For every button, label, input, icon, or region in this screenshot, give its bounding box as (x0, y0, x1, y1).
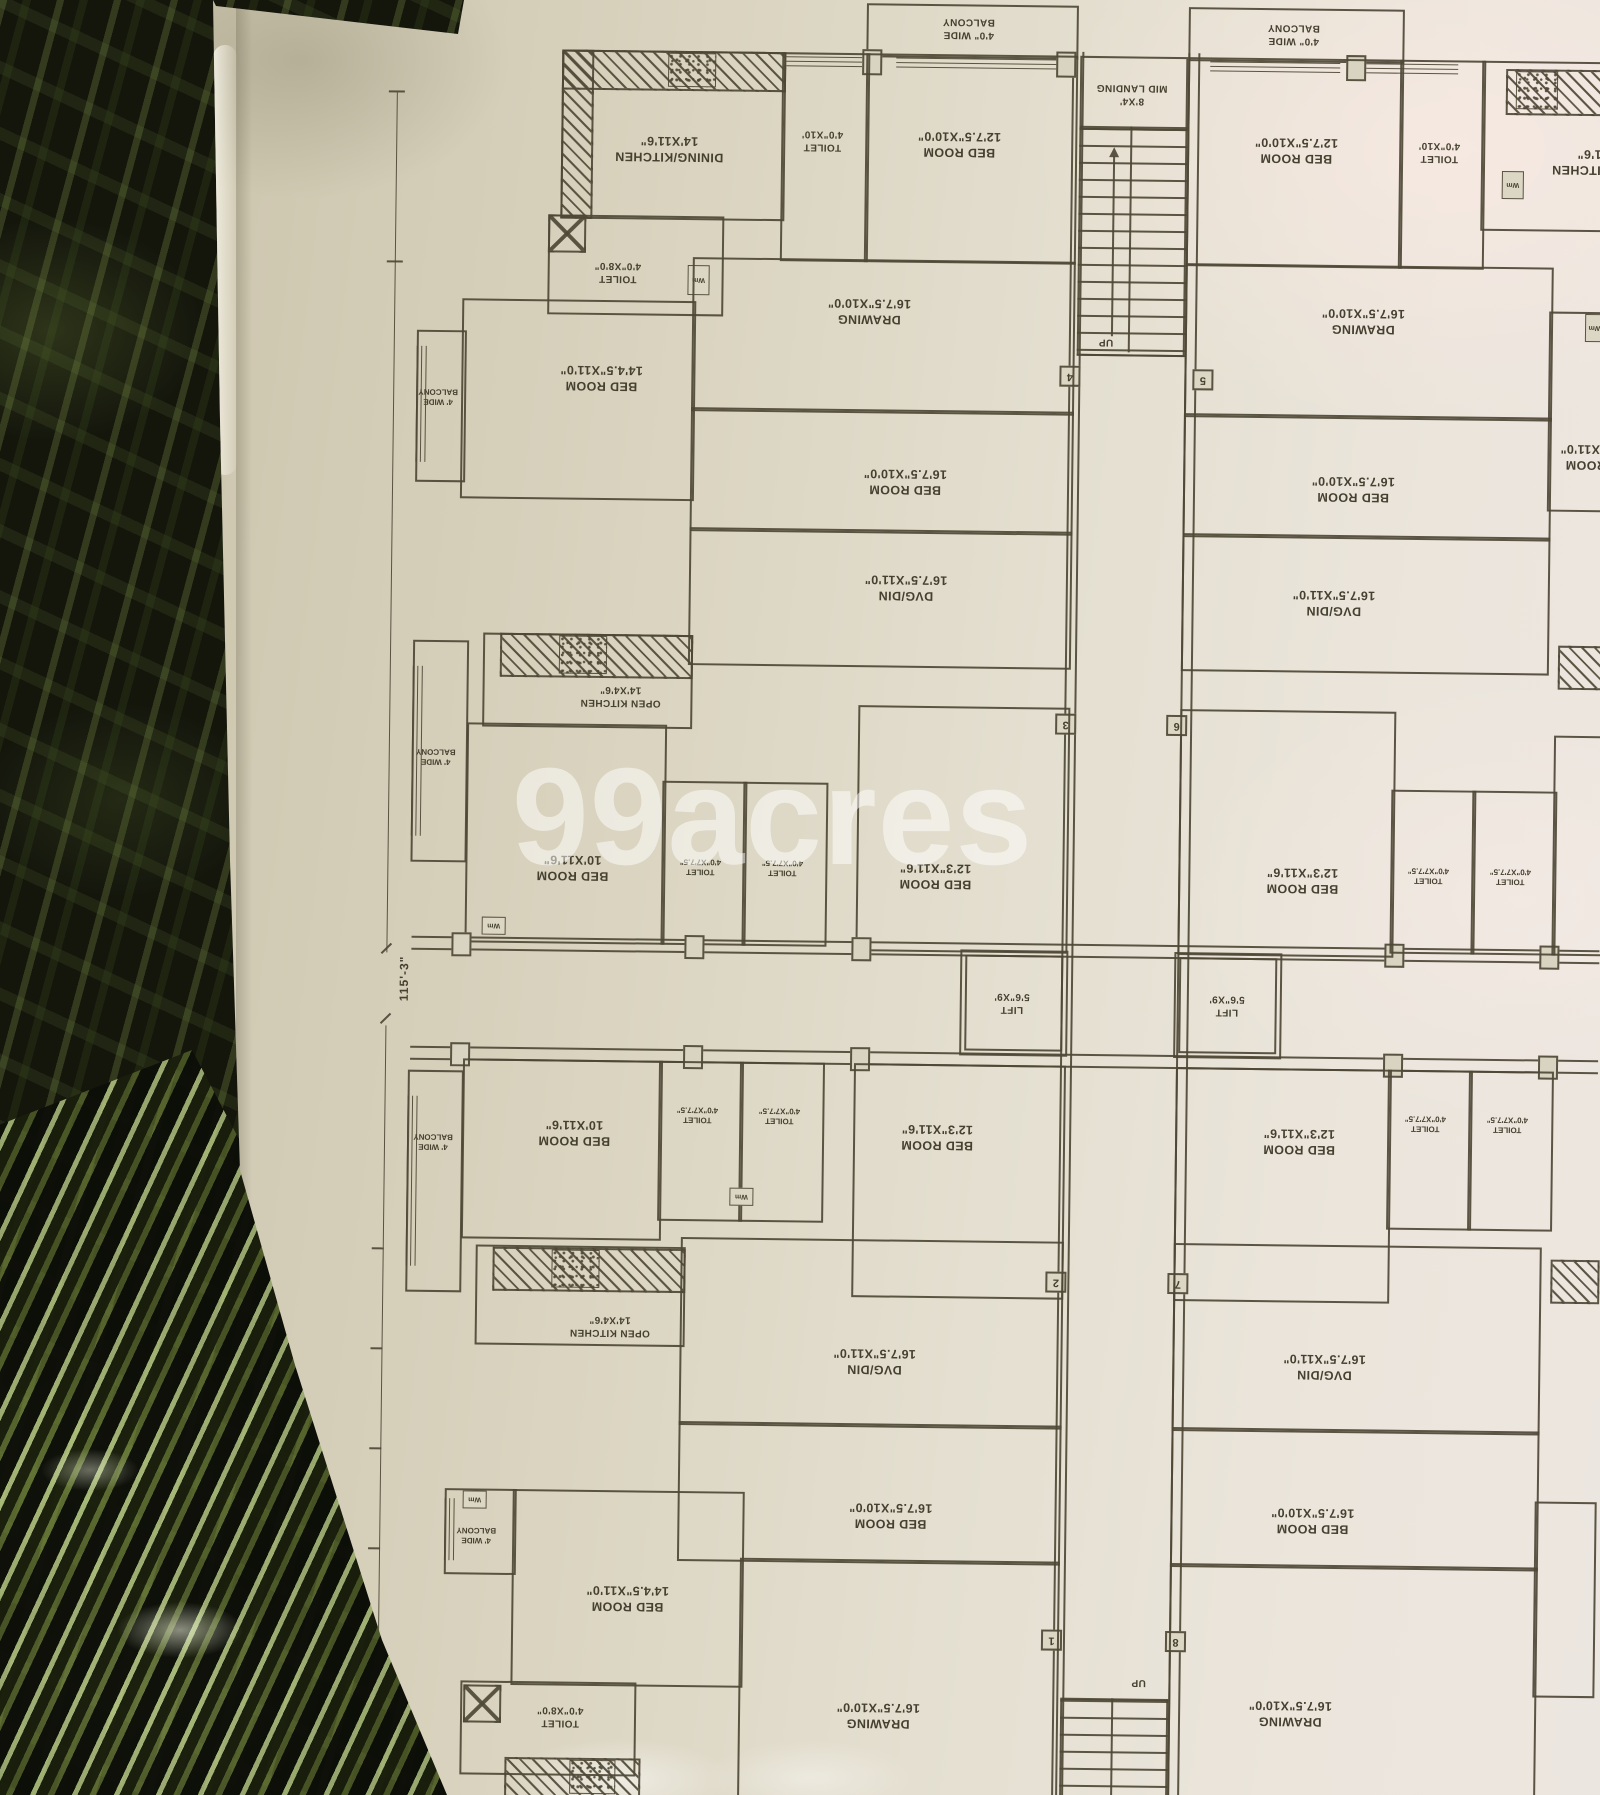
room-label-bedroom: BED ROOM12'7.5"X10'0" (1254, 134, 1338, 168)
washing-machine-box: Wm (729, 1188, 753, 1206)
room-toilet (780, 52, 871, 262)
room-label-bedroom: BED ROOM14'4.5"X11'0" (1560, 440, 1600, 474)
window-strip (444, 1498, 455, 1560)
room-label-open-kitchen: OPEN KITCHEN14'X4'6" (569, 1313, 650, 1340)
dimension-slash (380, 1013, 391, 1024)
room-label-toilet: TOILET4'0"X7'7.5" (759, 1105, 800, 1126)
washing-machine-box: Wm (1502, 171, 1524, 199)
room-drawing (1184, 263, 1554, 421)
room-label-drawing: DRAWING16'7.5"X10'0" (1321, 305, 1405, 339)
stone-masonry (551, 1249, 599, 1288)
room-toilet (1386, 1070, 1473, 1231)
watermark: 99acres (512, 738, 1033, 897)
column-xbox (548, 214, 586, 252)
room-label-toilet: TOILET4'0"X10' (801, 127, 843, 154)
room-label-dining-kitchen: DINING/KITCHEN14'X11'6" (615, 132, 724, 166)
stone-masonry (668, 53, 716, 88)
label-up-bottom: UP (1131, 1676, 1146, 1689)
room-label-toilet: TOILET4'0"X7'7.5" (1487, 1113, 1528, 1134)
label-mid-landing: 8'X4'MID LANDING (1096, 81, 1167, 108)
room-label-toilet: TOILET4'0"X7'7.5" (677, 1104, 718, 1125)
stone-masonry (1516, 71, 1558, 110)
room-label-toilet: TOILET4'0"X7'7.5" (1490, 865, 1531, 886)
washing-machine-box: Wm (463, 1490, 487, 1508)
room-label-bedroom: BED ROOM12'3"X11'6" (1263, 1125, 1335, 1158)
room-label-lift: LIFT5'6"X9' (1209, 992, 1245, 1018)
photo-of-floor-plan: 115'-3" 8'X4'MID LANDING UP UP 4 5 3 6 2… (0, 0, 1600, 1795)
room-bedroom (1551, 736, 1600, 957)
room-bedroom (460, 298, 696, 501)
window-strip (406, 1096, 418, 1266)
room-label-bedroom: BED ROOM14'4.5"X11'0" (560, 361, 643, 395)
room-label-bedroom: BED ROOM12'7.5"X10'0" (917, 128, 1001, 162)
room-label-bedroom: BED ROOM10'X11'6" (538, 1116, 610, 1149)
room-label-drawing: DRAWING16'7.5"X10'0" (827, 294, 911, 328)
room-label-toilet: TOILET4'0"X8'0" (594, 259, 641, 286)
stair-flight-bottom (1059, 1698, 1168, 1795)
wall-hatch (1550, 1260, 1600, 1305)
stone-masonry (559, 635, 607, 674)
dimension-tick (372, 1247, 384, 1249)
dimension-tick (368, 1547, 380, 1549)
room-bedroom (461, 1058, 663, 1240)
washing-machine-box: Wm (1585, 314, 1600, 342)
room-label-balcony: 4' WIDEBALCONY (456, 1524, 496, 1545)
label-up-top: UP (1098, 336, 1113, 349)
wall-hatch (560, 49, 594, 218)
room-label-balcony: 4'0" WIDEBALCONY (942, 15, 995, 42)
washing-machine-box: Wm (482, 917, 506, 935)
room-bedroom (1177, 709, 1396, 958)
room-label-open-kitchen: OPEN KITCHEN14'X4'6" (580, 683, 661, 710)
room-label-lift: LIFT5'6"X9' (994, 990, 1030, 1016)
dimension-tick (389, 90, 405, 92)
room-dvg-din (679, 1237, 1064, 1430)
room-label-dvg-din: DVG/DIN16'7.5"X11'0" (864, 571, 947, 605)
column-block (451, 932, 471, 956)
room-dvg-din (1172, 1243, 1542, 1435)
room-toilet (1467, 1071, 1554, 1232)
room-label-bedroom: BED ROOM16'7.5"X10'0" (1271, 1504, 1355, 1538)
room-label-bedroom: BED ROOM16'7.5"X10'0" (1311, 472, 1395, 506)
room-label-balcony: 4'0" WIDEBALCONY (1267, 21, 1320, 48)
wall-hatch (1558, 646, 1600, 691)
room-label-dvg-din: DVG/DIN16'7.5"X11'0" (833, 1345, 916, 1379)
room-label-drawing: DRAWING16'7.5"X10'0" (1248, 1697, 1332, 1731)
column-xbox (463, 1684, 501, 1722)
stone-masonry (569, 1760, 615, 1795)
room-label-balcony: 4' WIDEBALCONY (413, 1130, 453, 1151)
room-label-balcony: 4' WIDEBALCONY (418, 385, 458, 406)
room-label-toilet: TOILET4'0"X7'7.5" (1405, 1112, 1446, 1133)
room-label-drawing: DRAWING16'7.5"X10'0" (836, 1699, 920, 1733)
room-label-dining-kitchen: DINING/KITCHEN14'X11'6" (1552, 145, 1600, 179)
room-label-toilet: TOILET4'0"X8'0" (536, 1703, 583, 1730)
room-label-bedroom: BED ROOM16'7.5"X10'0" (849, 1499, 933, 1533)
room-drawing (737, 1558, 1060, 1795)
room-label-bedroom: BED ROOM12'3"X11'6" (901, 1120, 973, 1153)
room-label-toilet: TOILET4'0"X10' (1418, 139, 1460, 166)
room-label-bedroom: BED ROOM12'3"X11'6" (1266, 864, 1338, 897)
dimension-tick (370, 1347, 382, 1349)
room-label-bedroom: BED ROOM16'7.5"X10'0" (863, 465, 947, 499)
room-bedroom (1170, 1427, 1540, 1571)
dimension-tick (369, 1447, 381, 1449)
room-label-bedroom: BED ROOM14'4.5"X11'0" (586, 1582, 669, 1616)
dimension-label: 115'-3" (397, 956, 412, 1002)
room-label-toilet: TOILET4'0"X7'7.5" (1408, 864, 1449, 885)
room-drawing (1167, 1563, 1538, 1795)
room-bedroom (1532, 1501, 1596, 1698)
column-block (684, 935, 704, 959)
column-block (851, 937, 871, 961)
stair-flight-top (1077, 126, 1188, 357)
dimension-line (386, 92, 398, 952)
room-label-dvg-din: DVG/DIN16'7.5"X11'0" (1292, 586, 1375, 620)
room-drawing (691, 257, 1076, 416)
room-label-dvg-din: DVG/DIN16'7.5"X11'0" (1283, 1350, 1366, 1384)
dimension-tick (387, 260, 403, 262)
stair-arrow-head (1109, 147, 1119, 157)
room-label-balcony: 4' WIDEBALCONY (416, 745, 456, 766)
